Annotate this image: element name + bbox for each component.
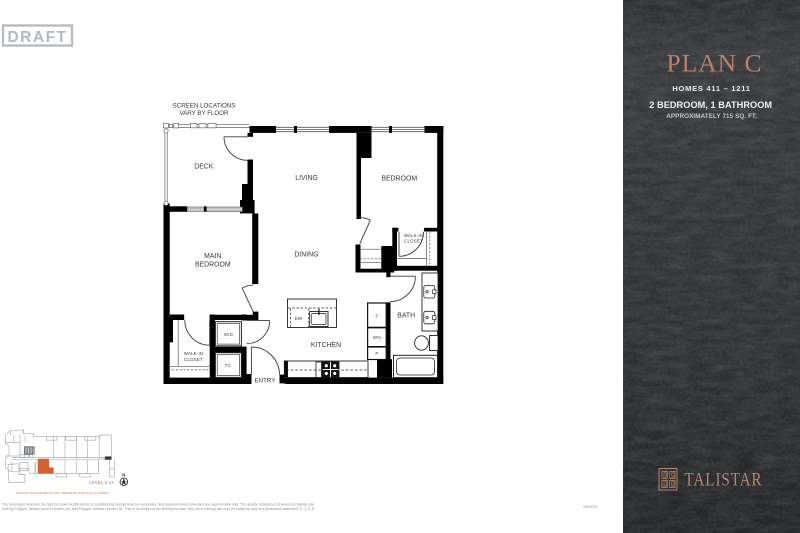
svg-text:APPROXIMATELY 715 SQ. FT.: APPROXIMATELY 715 SQ. FT.: [666, 113, 757, 120]
svg-text:WALK-IN: WALK-IN: [404, 233, 424, 238]
svg-text:CLOSET: CLOSET: [184, 357, 203, 362]
svg-text:DRAFT: DRAFT: [7, 29, 67, 46]
svg-text:MAIN: MAIN: [204, 253, 221, 260]
svg-text:FC: FC: [225, 363, 231, 368]
svg-text:WALK-IN: WALK-IN: [184, 351, 204, 356]
svg-text:DINING: DINING: [294, 252, 318, 259]
svg-text:BALCONY OUTLINE AND KEY NOT VE: BALCONY OUTLINE AND KEY NOT VERIFIED BY …: [16, 491, 108, 495]
svg-text:WO: WO: [373, 335, 381, 340]
svg-text:N: N: [122, 473, 125, 478]
svg-text:BEDROOM: BEDROOM: [195, 261, 231, 268]
svg-text:VARY BY FLOOR: VARY BY FLOOR: [179, 110, 229, 117]
svg-text:F: F: [375, 313, 378, 318]
svg-text:2 BEDROOM, 1 BATHROOM: 2 BEDROOM, 1 BATHROOM: [649, 100, 772, 110]
svg-text:The developer reserves the rig: The developer reserves the right to make…: [2, 503, 314, 507]
svg-text:DW: DW: [295, 316, 303, 321]
svg-text:BATH: BATH: [397, 313, 415, 320]
svg-text:HOMES 411 – 1211: HOMES 411 – 1211: [672, 84, 750, 93]
svg-text:TALISTAR: TALISTAR: [685, 469, 763, 490]
svg-text:LEVEL 5-12: LEVEL 5-12: [89, 480, 114, 485]
svg-text:SCREEN LOCATIONS: SCREEN LOCATIONS: [173, 103, 236, 110]
svg-text:built by Polygon Talistar Auro: built by Polygon Talistar Aurora Homes L…: [2, 507, 315, 511]
svg-text:P: P: [375, 351, 378, 356]
svg-text:DECK: DECK: [194, 164, 214, 171]
svg-text:ENTRY: ENTRY: [254, 378, 275, 385]
svg-text:W/D: W/D: [224, 332, 233, 337]
svg-text:LIVING: LIVING: [295, 175, 318, 182]
svg-text:KITCHEN: KITCHEN: [311, 342, 341, 349]
svg-text:09/13/23: 09/13/23: [583, 505, 597, 509]
svg-text:BEDROOM: BEDROOM: [381, 175, 417, 182]
svg-text:CLOSET: CLOSET: [404, 238, 423, 243]
svg-text:PLAN C: PLAN C: [667, 49, 763, 78]
